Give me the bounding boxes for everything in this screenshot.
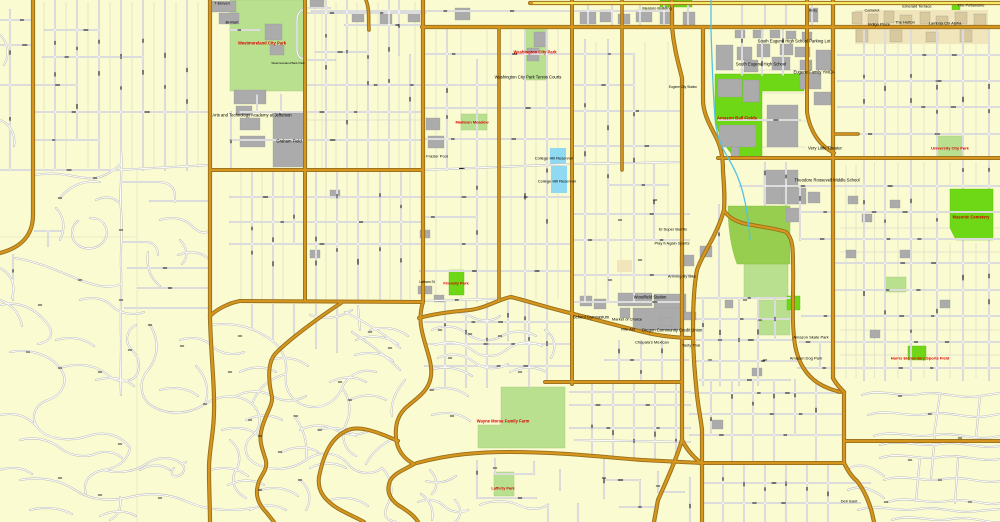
svg-text:South Eugene High School Parki: South Eugene High School Parking Lot xyxy=(758,38,831,43)
svg-text:7-Eleven: 7-Eleven xyxy=(214,0,230,5)
svg-text:Woodfield Station: Woodfield Station xyxy=(634,294,667,299)
svg-text:Lambda Chi Alpha: Lambda Chi Alpha xyxy=(929,20,962,25)
svg-text:Washington City Park Tennis Co: Washington City Park Tennis Courts xyxy=(495,74,562,79)
svg-text:Andy: Andy xyxy=(809,8,817,12)
svg-text:Emerald Terrace: Emerald Terrace xyxy=(902,3,932,8)
svg-text:Harris Elementary Sports Field: Harris Elementary Sports Field xyxy=(891,355,950,360)
svg-text:South Eugene High School: South Eugene High School xyxy=(736,61,786,66)
svg-text:Oregon Community Credit Union: Oregon Community Credit Union xyxy=(642,327,703,332)
svg-text:Lafferty Park: Lafferty Park xyxy=(491,486,515,490)
svg-text:Madison Meadow: Madison Meadow xyxy=(455,119,489,124)
svg-text:Masonic Cemetery: Masonic Cemetery xyxy=(952,214,990,219)
svg-text:Amazon Skate Park: Amazon Skate Park xyxy=(793,334,828,339)
svg-text:Washington City Park: Washington City Park xyxy=(513,49,557,54)
svg-text:Arriving By Bike: Arriving By Bike xyxy=(668,273,697,278)
svg-text:Camelot: Camelot xyxy=(865,7,881,12)
svg-text:Graham Field: Graham Field xyxy=(276,138,302,143)
svg-text:Chapala's Mexican: Chapala's Mexican xyxy=(635,339,669,344)
svg-text:Tasty Thai: Tasty Thai xyxy=(682,342,700,347)
svg-text:University City Park: University City Park xyxy=(931,145,970,150)
svg-text:Westmoreland City Park: Westmoreland City Park xyxy=(238,40,287,45)
svg-text:Arts and Technology Academy at: Arts and Technology Academy at Jefferson xyxy=(212,112,292,117)
svg-text:College Hill Reservoir: College Hill Reservoir xyxy=(535,155,574,160)
svg-text:The Pettansine: The Pettansine xyxy=(958,2,986,7)
svg-text:Bi-Mart: Bi-Mart xyxy=(226,19,240,24)
svg-text:Dell Isant: Dell Isant xyxy=(841,498,859,503)
svg-text:Amazon Dog Park: Amazon Dog Park xyxy=(790,355,822,360)
svg-text:Theodore Roosevelt Middle Scho: Theodore Roosevelt Middle School xyxy=(794,177,859,182)
svg-text:Eugene Family YMCA: Eugene Family YMCA xyxy=(793,69,834,74)
svg-text:El Super Burrito: El Super Burrito xyxy=(659,226,688,231)
svg-text:Indigo Place: Indigo Place xyxy=(868,21,891,26)
svg-text:School Gymnasium: School Gymnasium xyxy=(573,314,610,319)
svg-text:Rite Aid: Rite Aid xyxy=(621,326,635,331)
svg-text:Westmoreland Bark Park: Westmoreland Bark Park xyxy=(271,61,305,65)
svg-text:Latham St: Latham St xyxy=(419,280,435,284)
svg-text:Wayne Morse Family Farm: Wayne Morse Family Farm xyxy=(477,418,530,423)
svg-text:Friendly Park: Friendly Park xyxy=(443,280,469,285)
svg-text:Market of Choice: Market of Choice xyxy=(612,316,643,321)
svg-text:The Hutton: The Hutton xyxy=(895,19,915,24)
svg-text:Eugene City Station: Eugene City Station xyxy=(669,85,697,89)
svg-text:Frazier Pool: Frazier Pool xyxy=(426,153,448,158)
svg-text:Amazon Ball Fields: Amazon Ball Fields xyxy=(717,116,758,121)
svg-text:College Hill Reservoir: College Hill Reservoir xyxy=(538,178,577,183)
svg-text:Play It Again Sports: Play It Again Sports xyxy=(655,240,690,245)
svg-text:Menlolo Building: Menlolo Building xyxy=(642,5,671,10)
svg-text:Very Little Theater: Very Little Theater xyxy=(808,145,843,150)
